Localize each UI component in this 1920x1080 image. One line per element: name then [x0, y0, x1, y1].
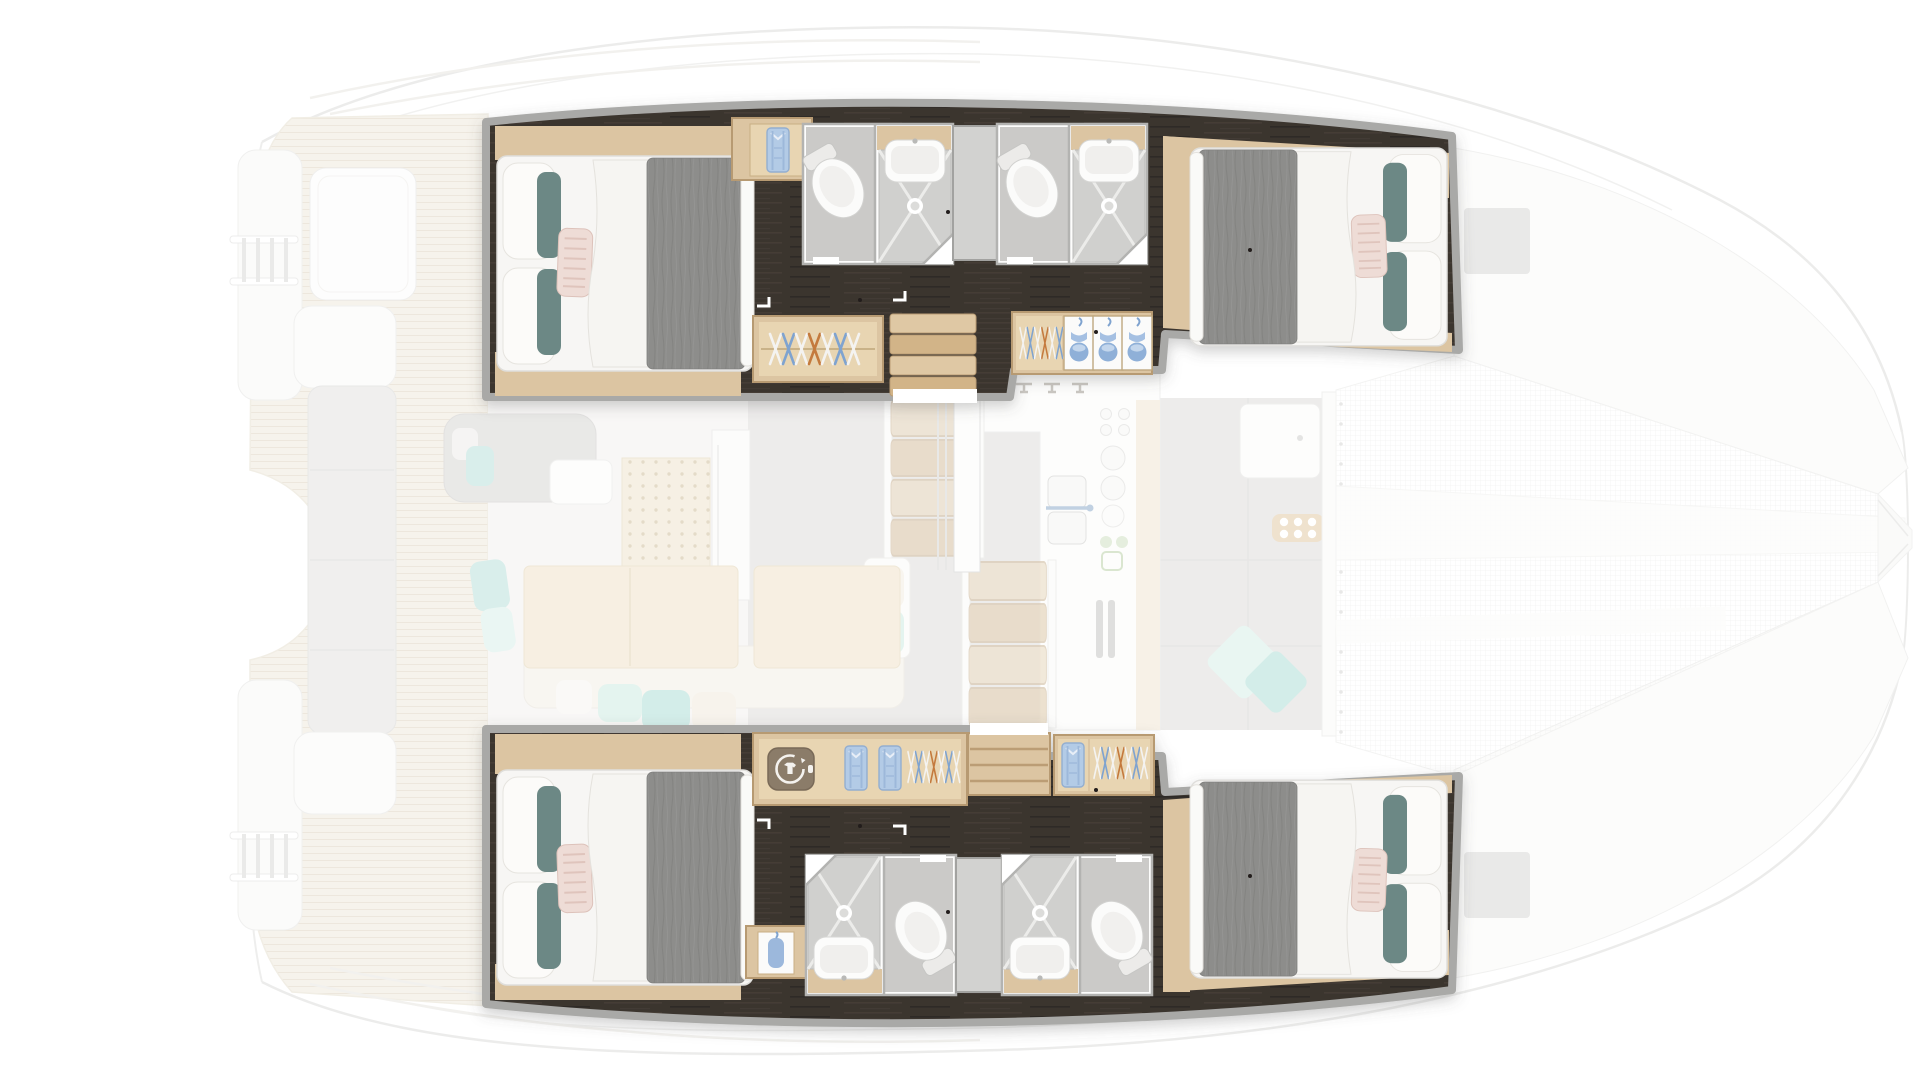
closet [732, 118, 812, 180]
port-bathroom-aft [795, 124, 953, 264]
windlass-pad [1272, 514, 1324, 542]
starboard-bathroom-aft [806, 855, 964, 995]
aft-port-bed [497, 156, 754, 371]
catamaran-floor-plan [0, 0, 1920, 1080]
stair-opening [893, 389, 977, 403]
sliding-door-panel [953, 126, 997, 260]
vent-grille [1108, 600, 1115, 658]
starboard-bathroom-fwd [1002, 855, 1160, 995]
bathrobe-cabinet [746, 926, 806, 978]
wardrobe-hangers [1054, 735, 1154, 795]
floor-plan-stage [0, 0, 1920, 1080]
starboard-stairs [968, 723, 1050, 795]
cushion [556, 680, 592, 714]
teal-cushion [466, 446, 494, 486]
port-bathroom-fwd [989, 124, 1147, 264]
bathrobe [768, 938, 784, 968]
galley-wood-strip [1136, 400, 1160, 730]
wardrobe-hangers [753, 316, 883, 382]
transom-platform [238, 680, 302, 930]
sliding-door-panel [956, 858, 1002, 992]
cushion [692, 692, 736, 730]
cabin-wood-floor [495, 734, 741, 774]
dinette-table [754, 566, 900, 668]
sliding-door-post [954, 396, 980, 572]
cabin-shelf [495, 126, 741, 160]
wardrobe-laundry [753, 733, 967, 805]
forward-port-bed [1190, 148, 1447, 346]
teal-cushion [642, 690, 690, 730]
mint-cushion [598, 684, 642, 722]
gray-deck-hatch [1464, 208, 1530, 274]
bench-backrest [294, 306, 396, 388]
forward-crossbeam [1322, 392, 1336, 736]
vent-grille [1096, 600, 1103, 658]
coffee-table [550, 460, 612, 504]
deck-hatch [1240, 404, 1320, 478]
bench-backrest [294, 732, 396, 814]
cockpit-table [310, 168, 416, 300]
aft-starboard-bed [497, 770, 754, 985]
wardrobe-cubbies [1012, 312, 1152, 374]
forward-starboard-bed [1190, 780, 1447, 978]
gray-deck-hatch [1464, 852, 1530, 918]
